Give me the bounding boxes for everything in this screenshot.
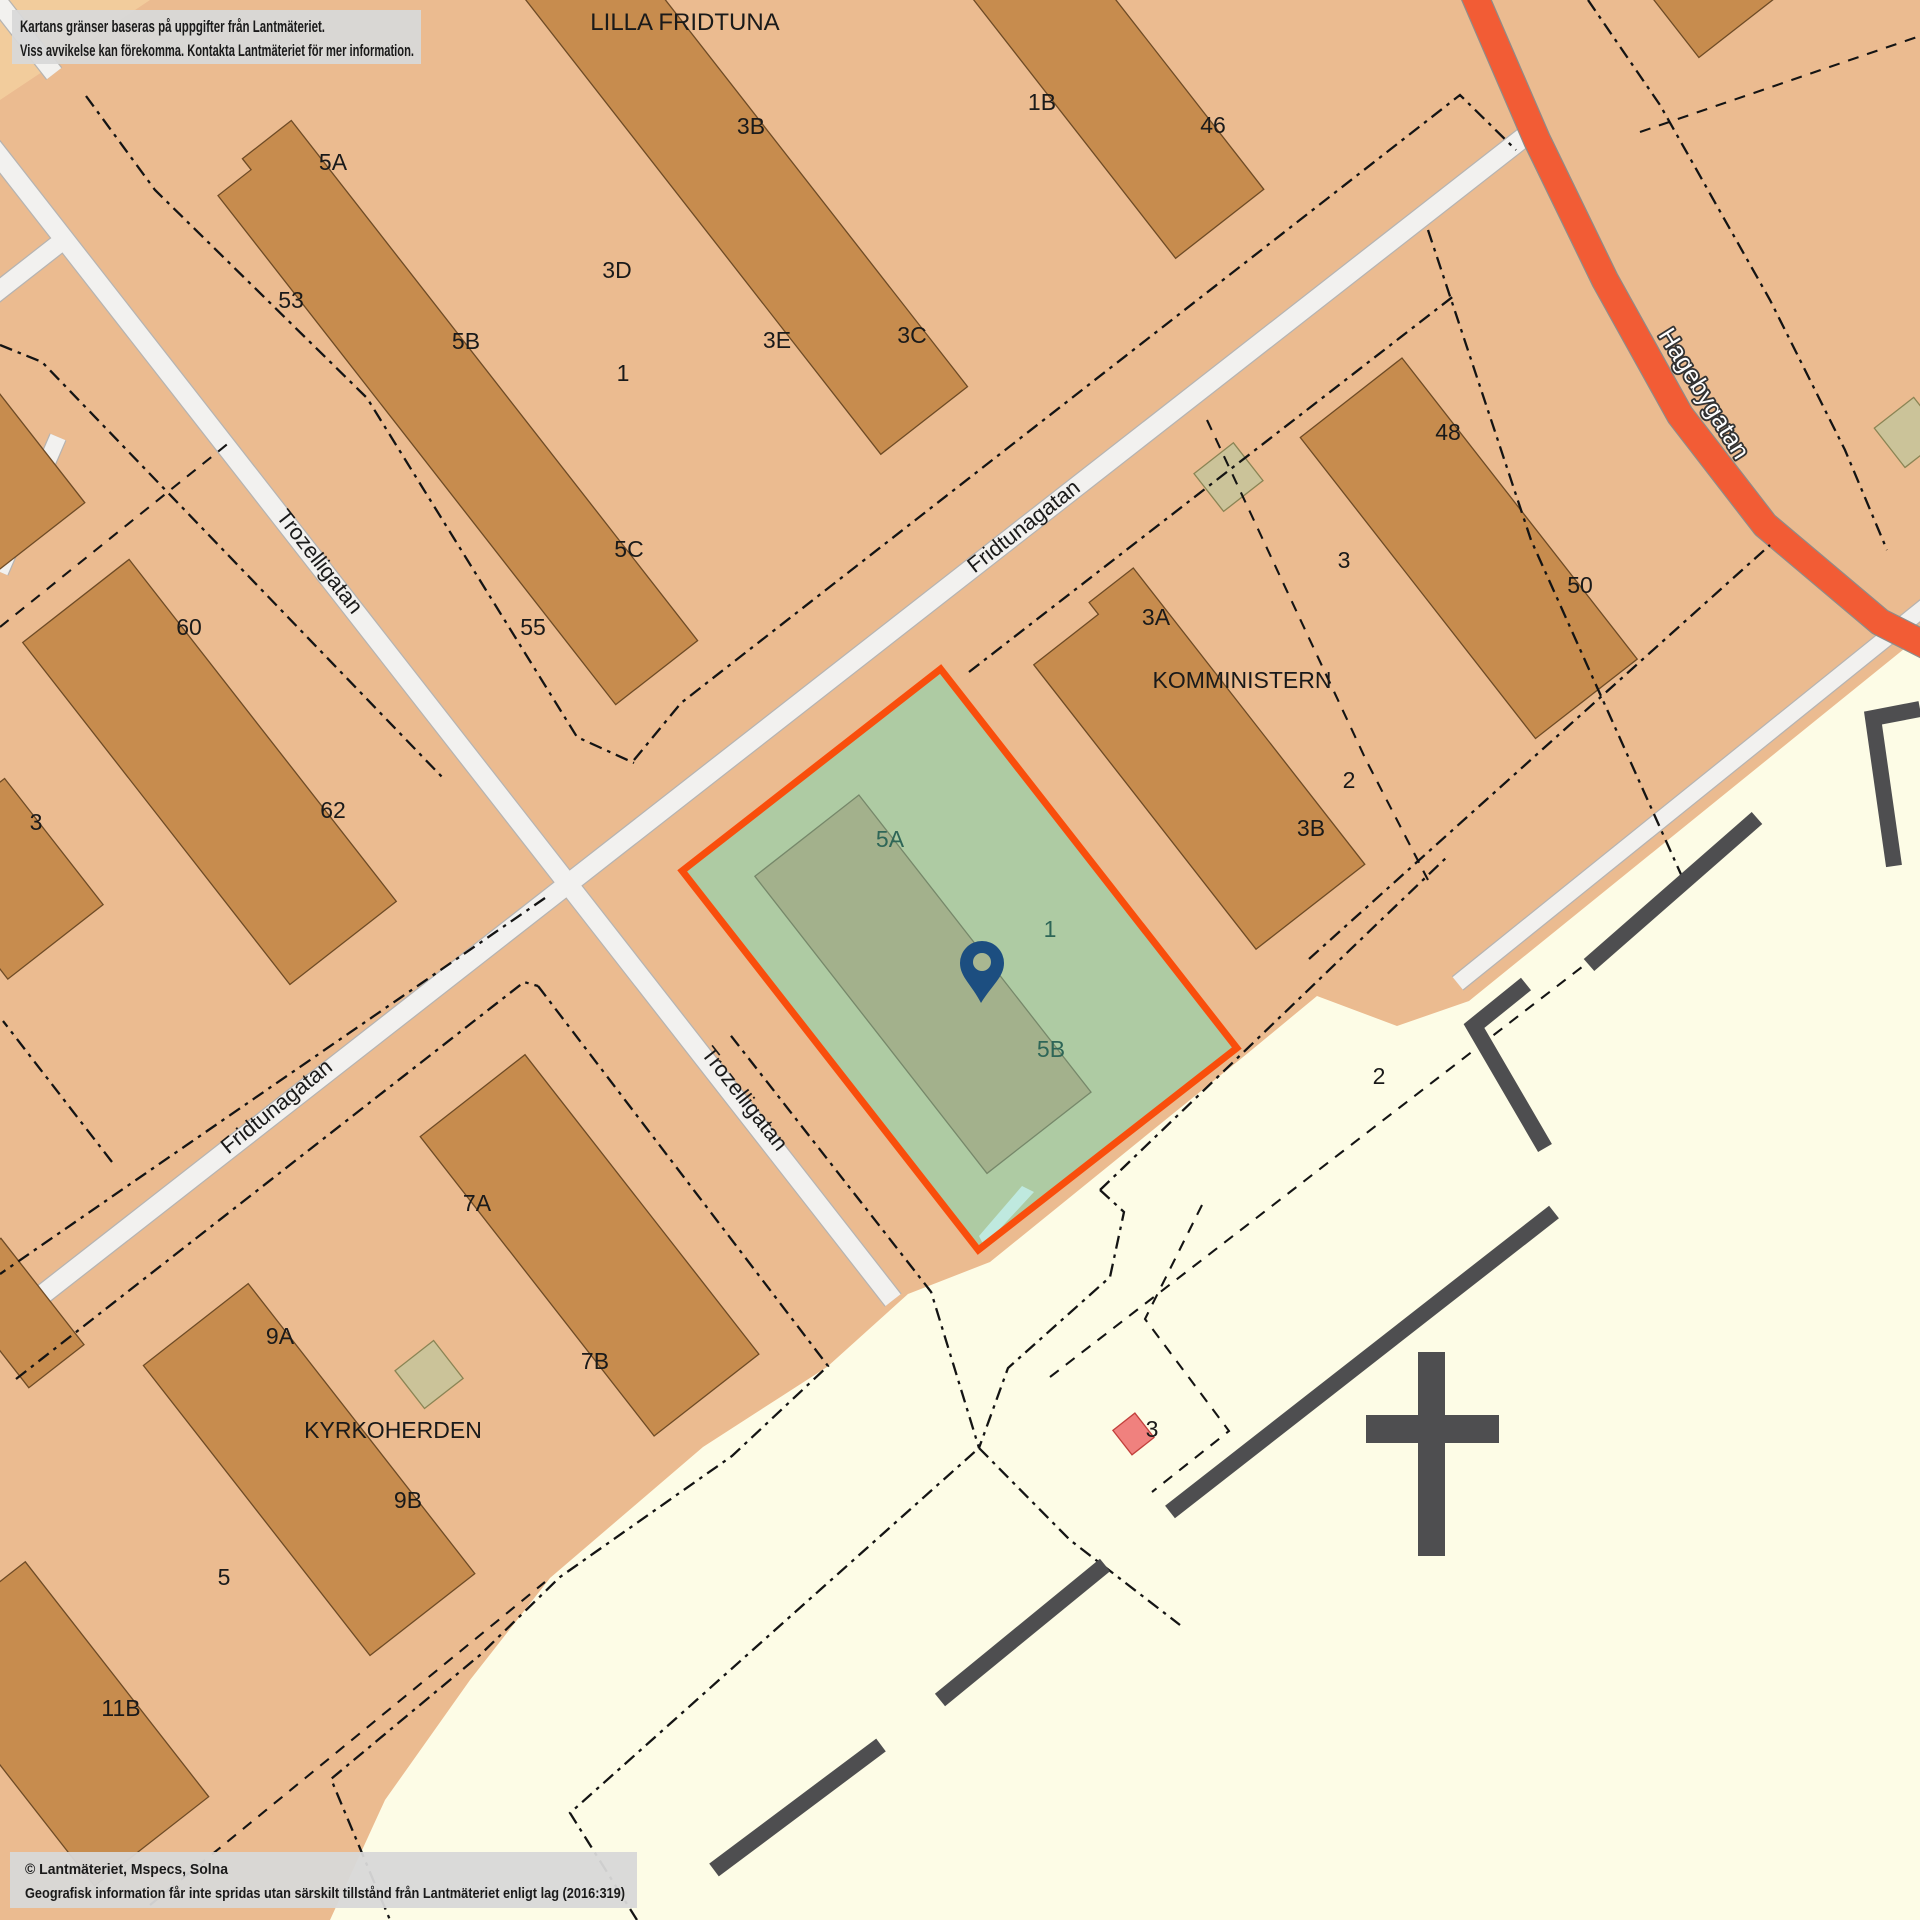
svg-text:1B: 1B <box>1028 89 1056 115</box>
svg-text:© Lantmäteriet, Mspecs, Solna: © Lantmäteriet, Mspecs, Solna <box>25 1861 229 1878</box>
svg-text:3E: 3E <box>763 327 791 353</box>
svg-text:Geografisk information får int: Geografisk information får inte spridas … <box>25 1885 625 1902</box>
svg-text:7B: 7B <box>581 1348 609 1374</box>
svg-text:3D: 3D <box>602 257 631 283</box>
svg-text:3C: 3C <box>897 322 926 348</box>
svg-text:2: 2 <box>1373 1063 1386 1089</box>
svg-text:11B: 11B <box>101 1695 140 1721</box>
svg-text:KYRKOHERDEN: KYRKOHERDEN <box>304 1417 482 1443</box>
svg-text:53: 53 <box>278 287 304 313</box>
svg-text:1: 1 <box>1044 916 1057 942</box>
svg-text:50: 50 <box>1567 572 1593 598</box>
svg-text:LILLA FRIDTUNA: LILLA FRIDTUNA <box>590 9 779 36</box>
svg-text:3: 3 <box>30 809 43 835</box>
svg-text:5B: 5B <box>1037 1036 1065 1062</box>
svg-text:KOMMINISTERN: KOMMINISTERN <box>1153 667 1332 693</box>
svg-text:Kartans gränser baseras på upp: Kartans gränser baseras på uppgifter frå… <box>20 17 325 36</box>
svg-text:3: 3 <box>1338 547 1351 573</box>
svg-text:3B: 3B <box>737 113 765 139</box>
svg-text:2: 2 <box>1343 767 1356 793</box>
svg-text:46: 46 <box>1200 112 1226 138</box>
svg-text:48: 48 <box>1435 419 1461 445</box>
svg-text:55: 55 <box>520 614 546 640</box>
svg-text:7A: 7A <box>463 1190 492 1216</box>
svg-text:60: 60 <box>176 614 202 640</box>
svg-text:3: 3 <box>1146 1416 1159 1442</box>
svg-text:5B: 5B <box>452 328 480 354</box>
svg-text:5C: 5C <box>614 536 643 562</box>
svg-text:9A: 9A <box>266 1323 295 1349</box>
svg-text:Viss avvikelse kan förekomma.: Viss avvikelse kan förekomma. Kontakta L… <box>20 41 414 60</box>
svg-text:3B: 3B <box>1297 815 1325 841</box>
svg-text:3A: 3A <box>1142 604 1171 630</box>
svg-text:5: 5 <box>218 1564 231 1590</box>
svg-text:62: 62 <box>320 797 346 823</box>
svg-text:9B: 9B <box>394 1487 422 1513</box>
svg-text:1: 1 <box>617 360 630 386</box>
svg-text:5A: 5A <box>876 826 905 852</box>
svg-text:5A: 5A <box>319 149 348 175</box>
